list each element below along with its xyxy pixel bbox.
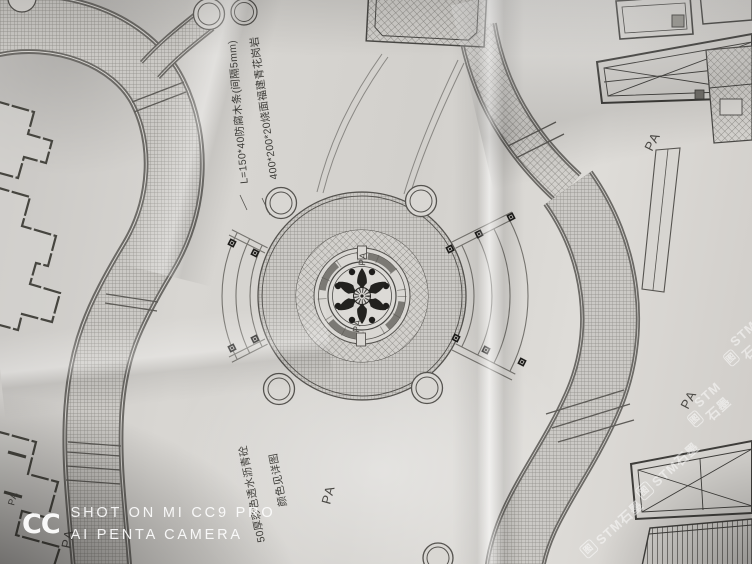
site-plan-photo: PA PA PA PA PA PA PA L=150*40防腐木条(间隔5mm)… bbox=[0, 0, 752, 564]
pa-label: PA bbox=[318, 483, 338, 506]
building-top-right bbox=[616, 0, 752, 39]
top-plaza bbox=[366, 0, 488, 47]
pa-label-plaza-top: PA bbox=[357, 251, 369, 266]
camera-watermark-line1: SHOT ON MI CC9 PRO bbox=[71, 503, 276, 525]
building-outline-left-upper bbox=[0, 100, 60, 330]
wall-band-right bbox=[642, 148, 680, 292]
north-corridor-edges bbox=[317, 54, 464, 195]
annotation-leader-lines bbox=[240, 195, 270, 215]
right-road bbox=[477, 26, 634, 564]
camera-watermark: CC SHOT ON MI CC9 PRO AI PENTA CAMERA bbox=[22, 503, 275, 547]
central-plaza bbox=[258, 192, 466, 400]
plan-drawing-svg: PA PA PA PA PA PA PA bbox=[0, 0, 752, 564]
camera-watermark-line2: AI PENTA CAMERA bbox=[71, 525, 276, 547]
fan-bollards-left bbox=[227, 238, 259, 352]
colonnade-bottom-right bbox=[642, 519, 752, 564]
cc-logo: CC bbox=[22, 509, 60, 540]
